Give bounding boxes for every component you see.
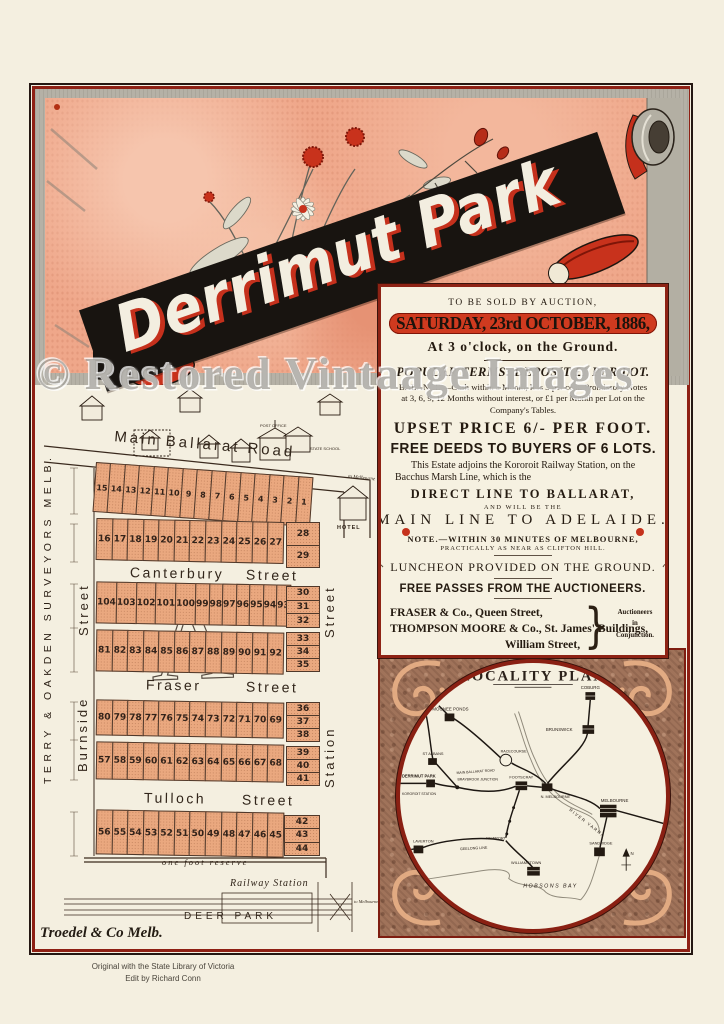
svg-text:KOROROIT STATION: KOROROIT STATION <box>402 792 437 796</box>
lot-74: 74 <box>189 701 206 737</box>
lot-36: 36 <box>286 702 320 716</box>
canterbury-street-label-2: Street <box>246 567 299 584</box>
lot-71: 71 <box>236 702 253 738</box>
to-melbourne-rail-label: to Melbourne <box>354 899 378 904</box>
surveyors-credit: TERRY & OAKDEN SURVEYORS MELB. <box>42 448 54 784</box>
lot-104: 104 <box>96 581 118 623</box>
svg-text:RACECOURSE: RACECOURSE <box>501 749 527 753</box>
edition-credits: Original with the State Library of Victo… <box>30 961 296 984</box>
lot-34: 34 <box>286 645 320 659</box>
auctioneer-1: FRASER & Co., Queen Street, <box>390 604 594 620</box>
lot-col-42-44: 424344 <box>284 815 320 856</box>
svg-text:HOBSONS BAY: HOBSONS BAY <box>523 883 577 889</box>
note-line-1: NOTE.—WITHIN 30 MINUTES OF MELBOURNE, <box>407 534 638 544</box>
title-underline <box>493 684 573 687</box>
free-passes: FREE PASSES FROM THE AUCTIONEERS. <box>400 581 646 595</box>
burnside-street-word: Street <box>76 580 91 636</box>
deer-park-label: DEER PARK <box>184 911 277 922</box>
poster: © Restored Vintaage Images <box>0 0 724 1024</box>
locality-title: LOCALITY PLAN <box>460 668 606 684</box>
svg-text:N: N <box>630 851 633 856</box>
lot-78: 78 <box>127 700 144 736</box>
auctioneer-2b: William Street, <box>390 636 594 652</box>
lot-62: 62 <box>174 743 191 781</box>
burnside-label: Burnside <box>75 692 90 772</box>
lot-75: 75 <box>174 701 191 737</box>
lot-44: 44 <box>284 842 320 856</box>
auction-date-text: SATURDAY, 23rd OCTOBER, 1886, <box>396 313 649 334</box>
lot-30: 30 <box>286 586 320 601</box>
post-office-label: POST OFFICE <box>260 423 287 428</box>
carnation-flowers <box>204 128 364 202</box>
railway-dots <box>455 785 515 835</box>
railway-station-label: Railway Station <box>230 878 309 889</box>
lot-row-57-68: 575859606162636465666768 <box>96 741 285 782</box>
lot-92: 92 <box>267 632 284 674</box>
lot-row-56-45: 565554535251504948474645 <box>96 809 285 857</box>
lot-27: 27 <box>267 522 284 564</box>
upset-price: UPSET PRICE 6/- PER FOOT. <box>394 420 652 438</box>
lot-68: 68 <box>267 744 284 782</box>
svg-text:ST ALBANS: ST ALBANS <box>422 751 443 756</box>
lot-col-28-29: 2829 <box>286 522 320 568</box>
svg-text:DERRIMUT PARK: DERRIMUT PARK <box>402 774 436 779</box>
conjunction-note: Auctioneers in Conjunction. <box>612 607 658 642</box>
svg-text:GEELONG LINE: GEELONG LINE <box>460 846 488 851</box>
station-street-word: Street <box>322 580 337 638</box>
terms-heading: POPULAR TERMS: DEPOSIT £1 PER LOT. <box>396 365 649 380</box>
divider <box>494 578 552 579</box>
lot-64: 64 <box>205 743 222 781</box>
lot-65: 65 <box>220 744 237 782</box>
subdivision-map: A TERRY & OAKDEN SURVEYORS MELB. Main Ba… <box>34 386 384 952</box>
lot-45: 45 <box>267 812 284 857</box>
house-icon <box>80 396 104 420</box>
lot-col-33-35: 333435 <box>286 632 320 672</box>
lot-80: 80 <box>96 699 113 735</box>
lot-61: 61 <box>158 742 175 780</box>
fraser-street-label: Fraser <box>146 677 202 694</box>
svg-text:COBURG: COBURG <box>581 685 601 690</box>
auctioneers-block: FRASER & Co., Queen Street, THOMPSON MOO… <box>390 604 656 658</box>
lot-row-16-27: 161718192021222324252627 <box>96 518 285 564</box>
house-icon <box>318 394 342 415</box>
auction-panel: TO BE SOLD BY AUCTION, SATURDAY, 23rd OC… <box>378 284 668 658</box>
printer-signature: Troedel & Co Melb. <box>40 925 163 942</box>
hotel-icon <box>338 486 368 520</box>
lot-col-30-32: 303132 <box>286 586 320 628</box>
lot-row-80-69: 807978777675747372717069 <box>96 699 285 738</box>
lot-33: 33 <box>286 632 320 646</box>
divider <box>494 555 552 556</box>
direct-line: DIRECT LINE TO BALLARAT, <box>411 487 636 502</box>
lot-57: 57 <box>96 741 113 779</box>
station-blocks <box>414 692 617 875</box>
lot-66: 66 <box>236 744 253 782</box>
locality-map-graphics: LOCALITY PLAN COBURG MOONEE PONDS BRUNSW… <box>400 663 666 929</box>
conjunction-line3: Conjunction. <box>612 630 658 642</box>
state-school-label: STATE SCHOOL <box>310 446 340 451</box>
lot-col-36-38: 363738 <box>286 702 320 742</box>
auctioneer-2: THOMPSON MOORE & Co., St. James' Buildin… <box>390 620 594 636</box>
brace-glyph: } <box>585 602 609 650</box>
lot-row-81-92: 818283848586878889909192 <box>96 629 285 674</box>
credit-line-2: Edit by Richard Conn <box>30 973 296 985</box>
canterbury-street-label: Canterbury <box>130 564 225 582</box>
lot-67: 67 <box>251 744 268 782</box>
tulloch-street-label: Tulloch <box>144 789 206 806</box>
river-yarra-line <box>406 712 600 900</box>
locality-panel: LOCALITY PLAN COBURG MOONEE PONDS BRUNSW… <box>378 648 686 938</box>
conjunction-line2: in <box>612 618 658 630</box>
lot-43: 43 <box>284 828 320 842</box>
lot-102: 102 <box>135 582 157 624</box>
flourish-icon <box>662 562 668 572</box>
lot-59: 59 <box>127 742 144 780</box>
tulloch-street-label-2: Street <box>242 792 295 809</box>
svg-text:FOOTSCRAY: FOOTSCRAY <box>509 775 533 780</box>
lot-77: 77 <box>142 700 159 736</box>
svg-text:N. MELBOURNE: N. MELBOURNE <box>541 794 571 799</box>
lot-73: 73 <box>205 701 222 737</box>
svg-text:MELBOURNE: MELBOURNE <box>601 798 629 803</box>
lot-100: 100 <box>175 583 197 625</box>
flourish-icon <box>378 562 384 572</box>
and-will-be: AND WILL BE THE <box>484 504 562 511</box>
lot-58: 58 <box>111 742 128 780</box>
svg-text:BRUNSWICK: BRUNSWICK <box>546 727 573 732</box>
auction-preamble: TO BE SOLD BY AUCTION, <box>448 298 597 308</box>
locality-circle: LOCALITY PLAN COBURG MOONEE PONDS BRUNSW… <box>396 659 670 933</box>
lot-60: 60 <box>142 742 159 780</box>
terms-body: BALANCE.—Cash within a Month, less 3 per… <box>397 382 649 416</box>
lot-32: 32 <box>286 613 320 628</box>
luncheon-row: LUNCHEON PROVIDED ON THE GROUND. <box>378 560 668 575</box>
lot-63: 63 <box>189 743 206 781</box>
lot-38: 38 <box>286 728 320 742</box>
lot-31: 31 <box>286 600 320 615</box>
lot-39: 39 <box>286 746 320 760</box>
house-icon <box>178 389 202 412</box>
auction-date-banner: SATURDAY, 23rd OCTOBER, 1886, <box>389 313 657 334</box>
luncheon-text: LUNCHEON PROVIDED ON THE GROUND. <box>390 560 655 575</box>
red-dot <box>54 104 60 110</box>
svg-text:BRAYBROOK JUNCTION: BRAYBROOK JUNCTION <box>457 777 498 781</box>
lot-40: 40 <box>286 759 320 773</box>
credit-line-1: Original with the State Library of Victo… <box>30 961 296 973</box>
lot-76: 76 <box>158 700 175 736</box>
svg-text:SANDRIDGE: SANDRIDGE <box>589 841 612 846</box>
fraser-street-label-2: Street <box>246 679 299 696</box>
lot-103: 103 <box>115 582 137 624</box>
svg-text:NEWPORT: NEWPORT <box>486 836 506 841</box>
lot-35: 35 <box>286 658 320 672</box>
railway-lines <box>400 692 666 868</box>
svg-text:WILLIAMSTOWN: WILLIAMSTOWN <box>511 860 541 865</box>
station-label: Station <box>322 704 337 788</box>
main-line-adelaide: MAIN LINE TO ADELAIDE. <box>378 512 668 529</box>
estate-description: This Estate adjoins the Kororoit Railway… <box>395 460 651 485</box>
lot-101: 101 <box>155 582 177 624</box>
lot-72: 72 <box>220 702 237 738</box>
svg-text:MOONEE PONDS: MOONEE PONDS <box>432 707 468 712</box>
svg-text:MAIN BALLARAT ROAD: MAIN BALLARAT ROAD <box>456 768 495 775</box>
lot-28: 28 <box>286 522 320 546</box>
lot-col-39-41: 394041 <box>286 746 320 786</box>
conjunction-line1: Auctioneers <box>612 607 658 619</box>
lot-37: 37 <box>286 715 320 729</box>
lot-42: 42 <box>284 815 320 829</box>
lot-69: 69 <box>267 702 284 738</box>
lot-70: 70 <box>251 702 268 738</box>
lot-79: 79 <box>111 700 128 736</box>
note-line-2: PRACTICALLY AS NEAR AS CLIFTON HILL. <box>440 545 605 552</box>
divider <box>494 598 552 599</box>
svg-text:LAVERTON: LAVERTON <box>413 839 434 844</box>
lot-29: 29 <box>286 545 320 569</box>
daisy-flower <box>291 197 315 221</box>
free-deeds: FREE DEEDS TO BUYERS OF 6 LOTS. <box>390 440 656 457</box>
hotel-label: HOTEL <box>337 525 361 531</box>
one-foot-reserve-label: one foot reserve <box>162 857 248 867</box>
lot-41: 41 <box>286 772 320 786</box>
divider <box>484 360 562 361</box>
lot-row-104-93: 10410310210110099989796959493 <box>96 581 285 626</box>
auctioneer-3: BLISS & PERYMAN, Collins Street West. <box>390 652 594 658</box>
auction-time: At 3 o'clock, on the Ground. <box>428 339 619 355</box>
